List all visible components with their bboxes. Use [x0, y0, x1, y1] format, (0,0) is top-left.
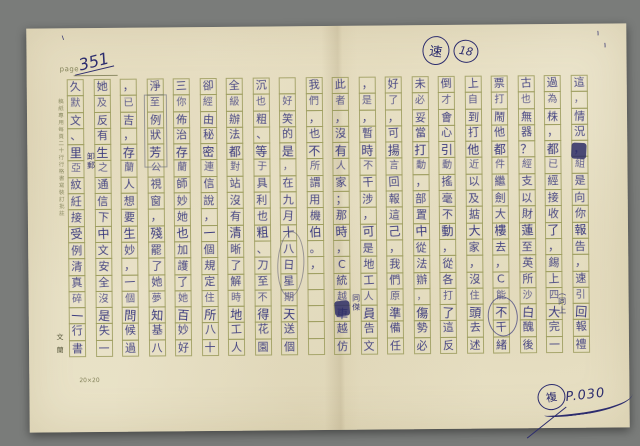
char-cell: 工 — [228, 322, 245, 339]
char-cell: 從 — [439, 255, 456, 272]
char-cell: ， — [359, 207, 376, 224]
handwritten-character: 票 — [491, 75, 507, 92]
char-cell: 必 — [411, 92, 428, 109]
char-cell: 中 — [412, 223, 429, 240]
char-cell: 鬧 — [491, 108, 508, 125]
handwritten-character: 後 — [520, 337, 535, 353]
handwritten-character: 文 — [361, 338, 376, 354]
handwritten-character: 去 — [493, 239, 508, 255]
char-cell: 下 — [94, 209, 111, 226]
char-cell: 沒 — [227, 192, 244, 209]
handwritten-character: 況 — [571, 123, 587, 140]
handwritten-character: 才 — [439, 93, 454, 109]
char-cell: ， — [147, 209, 164, 226]
handwritten-character: 那 — [333, 208, 349, 225]
char-cell: 件 — [491, 157, 508, 174]
char-cell: 速 — [572, 270, 589, 287]
handwritten-character: 她 — [174, 209, 190, 226]
char-cell: 票 — [491, 75, 508, 92]
char-cell: 打 — [465, 125, 482, 142]
char-cell: 毫 — [439, 190, 456, 207]
handwritten-character: 蘭 — [121, 161, 137, 178]
char-cell: 未 — [411, 76, 428, 93]
handwritten-character: 勢 — [414, 320, 430, 337]
char-cell: 了 — [227, 257, 244, 274]
char-cell: ， — [545, 238, 562, 255]
char-cell: 妙 — [121, 242, 138, 259]
char-cell: 級 — [226, 94, 243, 111]
handwritten-character: 引 — [573, 288, 588, 304]
interlinear-correction-note: （同上 — [557, 288, 568, 315]
handwritten-character: 文 — [68, 112, 84, 129]
handwritten-character: 想 — [122, 194, 137, 210]
char-cell: 沒 — [466, 271, 483, 288]
char-cell: 書 — [69, 340, 86, 357]
char-cell: 治 — [173, 127, 190, 144]
char-cell: 接 — [545, 189, 562, 206]
char-cell: 干 — [359, 174, 376, 191]
handwritten-character: 三 — [173, 78, 189, 95]
grid-column: 上自到打他近以及掂大家，沒住頭去述 — [464, 76, 483, 354]
handwritten-character: 笑 — [280, 110, 296, 127]
char-cell: 全 — [226, 78, 243, 95]
handwritten-character: 全 — [226, 77, 242, 94]
handwritten-character: 了 — [545, 221, 561, 238]
handwritten-character: 涉 — [360, 192, 375, 208]
char-cell: 掂 — [465, 206, 482, 223]
char-cell: 人 — [228, 338, 245, 355]
handwritten-character: 組 — [571, 157, 587, 174]
handwritten-character: 是 — [280, 143, 295, 159]
handwritten-character: 至 — [520, 239, 535, 255]
char-cell: ， — [570, 91, 587, 108]
char-cell: 已 — [120, 95, 137, 112]
handwritten-character: 信 — [95, 194, 110, 210]
char-cell: 辦 — [413, 272, 430, 289]
handwritten-character: 們 — [306, 94, 321, 110]
char-cell: 笑 — [279, 110, 296, 127]
char-cell: 後 — [519, 336, 536, 353]
char-cell: 有 — [332, 142, 349, 159]
handwritten-character: 一 — [96, 341, 111, 357]
char-cell: 是 — [358, 93, 375, 110]
char-cell: 自 — [464, 92, 481, 109]
grid-column: 久默文、里亞紋紝接受例清真碎一行書 — [67, 79, 86, 357]
handwritten-character: 下 — [95, 210, 111, 227]
handwritten-character: 上 — [465, 75, 481, 92]
handwritten-character: C — [493, 271, 509, 288]
char-cell: 蘭 — [173, 160, 190, 177]
handwritten-character: 告 — [573, 239, 588, 255]
char-cell: 定 — [201, 274, 218, 291]
char-cell: 各 — [439, 271, 456, 288]
char-cell: ， — [121, 258, 138, 275]
char-cell: 這 — [440, 320, 457, 337]
handwritten-character: ， — [440, 240, 455, 256]
handwritten-character: 花 — [255, 322, 271, 339]
handwritten-character: 所 — [306, 159, 322, 176]
handwritten-character: 工 — [360, 272, 376, 289]
handwritten-character: 蘭 — [174, 160, 190, 177]
handwritten-character: 紝 — [69, 194, 84, 210]
handwritten-character: 動 — [412, 158, 428, 175]
grid-column: 我們，也不所謂用機伯。， — [305, 77, 324, 355]
handwritten-character: 通 — [95, 176, 111, 193]
handwritten-character: 打 — [465, 124, 481, 141]
handwritten-character: 打 — [441, 289, 456, 305]
handwritten-character: 信 — [201, 175, 217, 192]
char-cell: 原 — [387, 288, 404, 305]
char-cell: 行 — [69, 324, 86, 341]
char-cell: 至 — [519, 238, 536, 255]
handwritten-character: 以 — [519, 190, 534, 206]
char-cell: 八 — [148, 339, 165, 356]
char-cell: 中 — [94, 226, 111, 243]
handwritten-character: 粗 — [254, 224, 270, 241]
char-cell: 越 — [334, 321, 351, 338]
handwritten-character: 反 — [94, 112, 110, 129]
handwritten-character: 具 — [254, 175, 270, 192]
handwritten-character: 妙 — [175, 193, 190, 209]
handwritten-character: 到 — [465, 109, 481, 126]
handwritten-character: 是 — [572, 172, 588, 189]
handwritten-character: 此 — [332, 76, 348, 93]
char-cell: 器 — [518, 124, 535, 141]
handwritten-character: 八 — [202, 322, 218, 339]
char-cell: 的 — [279, 126, 296, 143]
handwritten-character: 刀 — [254, 257, 270, 274]
handwritten-character: 無 — [518, 108, 534, 125]
grid-column: 古也無器？經支以財蓮至英所沙白醜後 — [517, 75, 536, 353]
handwritten-character: 卻 — [200, 78, 216, 95]
handwritten-character: 園 — [255, 339, 270, 355]
char-cell: 已 — [544, 156, 561, 173]
char-cell: 也 — [174, 225, 191, 242]
char-cell: 法 — [226, 127, 243, 144]
char-cell: 沉 — [252, 78, 269, 95]
char-cell: 連 — [200, 159, 217, 176]
handwritten-character: 搖 — [439, 173, 455, 190]
handwritten-character: 謂 — [307, 174, 323, 191]
handwritten-character: 接 — [68, 210, 84, 227]
handwritten-character: 任 — [388, 338, 403, 354]
char-cell: ， — [466, 255, 483, 272]
char-cell: 了 — [385, 93, 402, 110]
char-cell: 者 — [332, 93, 349, 110]
handwritten-character: ， — [122, 259, 138, 276]
char-cell: C — [333, 256, 350, 273]
handwritten-character: 住 — [202, 291, 217, 307]
handwritten-character: 我 — [387, 256, 403, 273]
char-cell: 她 — [175, 290, 192, 307]
char-cell: 她 — [174, 209, 191, 226]
char-cell: 有 — [227, 208, 244, 225]
handwritten-character: 去 — [467, 320, 483, 337]
char-cell: 八 — [201, 322, 218, 339]
char-cell: 都 — [226, 143, 243, 160]
char-cell: 反 — [440, 337, 457, 354]
handwritten-character: 、 — [68, 128, 84, 145]
char-cell: 一 — [95, 340, 112, 357]
char-cell: 基 — [148, 323, 165, 340]
handwritten-character: 晰 — [228, 242, 243, 258]
char-cell: 時 — [359, 142, 376, 159]
char-cell: 機 — [306, 207, 323, 224]
handwritten-character: 時 — [229, 291, 244, 307]
handwritten-character: 殘 — [148, 225, 164, 242]
char-cell: 不 — [254, 289, 271, 306]
char-cell: 不 — [306, 142, 323, 159]
char-cell: 晰 — [227, 241, 244, 258]
handwritten-character: 錫 — [546, 255, 562, 272]
char-cell: 失 — [95, 323, 112, 340]
char-cell — [307, 305, 324, 322]
handwritten-character: 過 — [544, 75, 560, 92]
handwritten-character: 已 — [121, 96, 136, 112]
handwritten-character: 揚 — [386, 143, 401, 159]
handwritten-character: 時 — [360, 143, 375, 159]
handwritten-character: 例 — [69, 243, 84, 259]
char-cell: 生 — [121, 225, 138, 242]
handwritten-character: 你 — [572, 206, 588, 223]
char-cell: 住 — [466, 288, 483, 305]
handwritten-character: 所 — [519, 270, 535, 287]
handwritten-character: 定 — [201, 273, 217, 290]
handwritten-character: 仿 — [335, 339, 350, 355]
handwritten-character: 沒 — [466, 271, 482, 288]
char-cell: 都 — [544, 140, 561, 157]
handwritten-character: 及 — [466, 191, 481, 207]
handwritten-character: 家 — [467, 240, 482, 256]
handwritten-character: 級 — [227, 95, 242, 111]
char-cell: 不 — [359, 158, 376, 175]
handwritten-character: 件 — [492, 158, 508, 175]
handwritten-character: 護 — [175, 258, 191, 275]
handwritten-character: 碎 — [70, 292, 85, 308]
grid-column: 未必妥當打動，部置中從法辦，傷勢必 — [411, 76, 430, 354]
interlinear-correction-note: 同傑 — [351, 294, 362, 312]
handwritten-character: 也 — [254, 209, 270, 226]
handwritten-character: 生 — [122, 225, 138, 242]
char-cell: 醜 — [519, 320, 536, 337]
char-cell: 經 — [199, 94, 216, 111]
char-cell: 花 — [254, 322, 271, 339]
char-cell: 言 — [385, 158, 402, 175]
char-cell: 去 — [466, 320, 483, 337]
char-cell: 想 — [121, 193, 138, 210]
handwritten-character: 報 — [572, 221, 588, 238]
char-cell: 紋 — [68, 177, 85, 194]
handwritten-character: 不 — [439, 207, 455, 224]
handwritten-character: 毫 — [440, 191, 455, 207]
handwritten-character: 人 — [121, 176, 137, 193]
handwritten-character: 過 — [123, 340, 138, 356]
crossed-out-character — [334, 300, 350, 316]
handwritten-character: ， — [493, 255, 509, 272]
handwritten-character: ， — [571, 92, 586, 108]
char-cell: 此 — [332, 77, 349, 94]
handwritten-character: 人 — [361, 289, 376, 305]
handwritten-character: 打 — [492, 93, 507, 109]
char-cell: 吉 — [120, 111, 137, 128]
char-cell: 存 — [120, 144, 137, 161]
handwritten-character: 你 — [174, 96, 189, 112]
char-cell: 好 — [175, 339, 192, 356]
handwritten-character: 窗 — [148, 194, 163, 210]
handwritten-character: 之 — [95, 161, 111, 178]
crossed-out-character — [571, 142, 587, 159]
handwritten-character: ， — [148, 209, 164, 226]
char-cell: 由 — [199, 111, 216, 128]
char-cell: 會 — [438, 108, 455, 125]
handwritten-character: 也 — [518, 92, 533, 108]
handwritten-character: 財 — [519, 206, 535, 223]
char-cell: 一 — [121, 274, 138, 291]
char-cell: 時 — [333, 223, 350, 240]
char-cell: 碎 — [69, 291, 86, 308]
char-cell: 等 — [253, 143, 270, 160]
char-cell: 在 — [280, 175, 297, 192]
char-cell: 都 — [491, 141, 508, 158]
char-cell — [307, 273, 324, 290]
handwritten-character: 報 — [573, 319, 589, 336]
handwritten-character: 引 — [439, 142, 454, 158]
handwritten-character: 她 — [176, 291, 191, 307]
handwritten-character: 沒 — [333, 125, 349, 142]
char-cell: 住 — [201, 290, 218, 307]
char-cell: 無 — [517, 108, 534, 125]
handwritten-character: 辦 — [413, 271, 429, 288]
handwritten-character: 從 — [414, 240, 429, 256]
char-cell — [307, 338, 324, 355]
char-cell: 工 — [360, 272, 377, 289]
handwritten-character: 候 — [122, 323, 138, 340]
handwritten-character: 站 — [227, 175, 243, 192]
handwritten-character: 是 — [359, 94, 374, 110]
char-cell: 過 — [122, 339, 139, 356]
grid-size-label: 20×20 — [79, 377, 99, 384]
handwritten-character: 了 — [148, 258, 164, 275]
char-cell: 告 — [572, 238, 589, 255]
char-cell: 不 — [439, 206, 456, 223]
char-cell: 接 — [68, 209, 85, 226]
char-cell: 蓮 — [518, 222, 535, 239]
handwritten-character: 文 — [96, 243, 111, 259]
handwritten-character: ， — [121, 127, 137, 144]
char-cell: 文 — [360, 337, 377, 354]
char-cell: ， — [279, 159, 296, 176]
handwritten-character: 妥 — [412, 109, 428, 126]
handwritten-character: 九 — [281, 192, 296, 208]
handwritten-character: 他 — [466, 142, 481, 158]
manuscript-scan: 久默文、里亞紋紝接受例清真碎一行書她及反有生之通信下中文安全沒是失一，已吉，存蘭… — [0, 0, 640, 446]
char-cell: ， — [120, 128, 137, 145]
grid-column: 三你佈治存蘭師妙她也加護了她百妙好 — [173, 78, 192, 356]
char-cell: 是 — [360, 240, 377, 257]
char-cell: 支 — [518, 173, 535, 190]
handwritten-character: 這 — [386, 207, 402, 224]
char-cell: 清 — [227, 224, 244, 241]
char-cell: ， — [544, 124, 561, 141]
handwritten-character: 劍 — [493, 191, 508, 207]
handwritten-character: 述 — [467, 337, 482, 353]
char-cell: 受 — [68, 226, 85, 243]
handwritten-character: 在 — [280, 175, 296, 192]
handwritten-character: 動 — [440, 222, 456, 239]
handwritten-character: 支 — [519, 173, 535, 190]
handwritten-character: 是 — [361, 241, 376, 257]
char-cell: 視 — [147, 176, 164, 193]
char-cell: 緒 — [493, 336, 510, 353]
handwritten-character: 各 — [440, 271, 456, 288]
char-cell: ， — [386, 239, 403, 256]
char-cell: 大 — [492, 206, 509, 223]
handwritten-character: ？ — [519, 141, 534, 157]
handwritten-character: 十 — [202, 340, 217, 356]
handwritten-character: 好 — [385, 76, 401, 93]
char-cell: 引 — [572, 287, 589, 304]
char-cell: 有 — [94, 128, 111, 145]
char-cell: 用 — [306, 191, 323, 208]
char-cell: 是 — [279, 142, 296, 159]
handwritten-character: 以 — [466, 173, 482, 190]
char-cell: 反 — [93, 111, 110, 128]
char-cell: 秘 — [200, 127, 217, 144]
char-cell: 株 — [544, 108, 561, 125]
char-cell: 你 — [173, 94, 190, 111]
handwritten-character: 淨 — [147, 78, 163, 95]
char-cell: 了 — [148, 258, 165, 275]
char-cell: 候 — [122, 323, 139, 340]
handwritten-character: 這 — [571, 74, 587, 91]
char-cell: 我 — [386, 256, 403, 273]
handwritten-character: 為 — [545, 92, 560, 108]
char-cell: ， — [305, 110, 322, 127]
char-cell — [307, 321, 324, 338]
char-cell: 動 — [438, 157, 455, 174]
char-cell: ， — [439, 239, 456, 256]
handwritten-character: 蓮 — [519, 221, 535, 238]
char-cell: 全 — [95, 274, 112, 291]
handwritten-character: 沒 — [96, 292, 111, 308]
grid-column: 全級辦法都對站沒有清晰了解時地工人 — [226, 78, 245, 356]
handwritten-character: 越 — [334, 321, 350, 338]
char-cell: 個 — [281, 338, 298, 355]
char-cell: ， — [358, 109, 375, 126]
char-cell: 才 — [438, 92, 455, 109]
char-cell — [279, 77, 296, 94]
handwritten-character: 古 — [518, 75, 534, 92]
char-cell: 打 — [412, 141, 429, 158]
char-cell: 樓 — [492, 222, 509, 239]
char-cell: 收 — [545, 205, 562, 222]
char-cell: 可 — [359, 223, 376, 240]
char-cell: 統 — [333, 272, 350, 289]
char-cell: 打 — [440, 288, 457, 305]
left-margin-fine-print: 稿紙專用每頁二十行行格書寫裝訂批註 — [56, 98, 65, 217]
handwritten-character: 有 — [227, 209, 243, 226]
handwritten-character: 吉 — [121, 112, 137, 129]
char-cell: 經 — [518, 157, 535, 174]
handwritten-character: 株 — [545, 108, 561, 125]
char-cell: 當 — [412, 125, 429, 142]
handwritten-character: 人 — [333, 159, 349, 176]
handwritten-character: ， — [306, 110, 322, 127]
char-cell: ， — [412, 174, 429, 191]
char-cell: 報 — [572, 319, 589, 336]
char-cell: ， — [120, 79, 137, 96]
char-cell: 及 — [465, 190, 482, 207]
